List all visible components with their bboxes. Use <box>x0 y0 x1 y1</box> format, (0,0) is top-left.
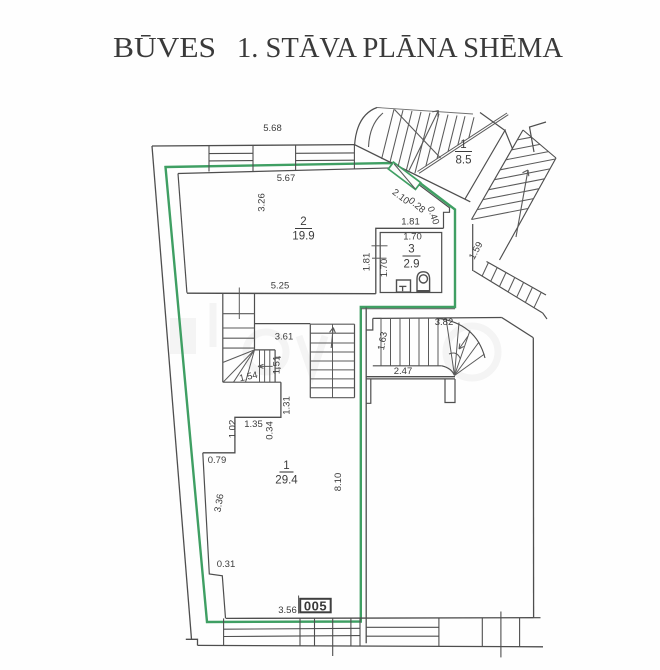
svg-text:1.31: 1.31 <box>282 396 293 415</box>
svg-text:2.9: 2.9 <box>404 259 420 271</box>
svg-text:3.82: 3.82 <box>435 317 454 328</box>
svg-text:8.10: 8.10 <box>333 473 344 492</box>
svg-text:1.70: 1.70 <box>403 232 422 243</box>
svg-text:3.26: 3.26 <box>257 193 268 212</box>
svg-text:1.70: 1.70 <box>379 259 390 278</box>
svg-text:1: 1 <box>283 460 289 472</box>
svg-text:BŪVES: BŪVES <box>113 33 216 64</box>
svg-text:1. STĀVA PLĀNA SHĒMA: 1. STĀVA PLĀNA SHĒMA <box>237 33 564 64</box>
svg-text:2.47: 2.47 <box>394 366 413 377</box>
svg-text:1.51: 1.51 <box>271 356 282 375</box>
svg-text:3.56: 3.56 <box>278 605 297 616</box>
svg-text:19.9: 19.9 <box>292 231 314 243</box>
svg-text:3.61: 3.61 <box>275 332 294 343</box>
svg-text:1: 1 <box>460 139 466 151</box>
svg-text:5.67: 5.67 <box>277 173 296 184</box>
svg-text:2: 2 <box>300 216 306 228</box>
svg-text:1.02: 1.02 <box>227 420 238 439</box>
svg-text:0.79: 0.79 <box>208 455 227 466</box>
svg-text:1.35: 1.35 <box>244 419 263 430</box>
svg-text:0.31: 0.31 <box>217 559 236 570</box>
svg-text:005: 005 <box>304 599 327 614</box>
svg-text:0.34: 0.34 <box>264 421 275 440</box>
svg-text:8.5: 8.5 <box>456 155 472 167</box>
svg-text:5.68: 5.68 <box>263 123 282 134</box>
svg-text:1.81: 1.81 <box>361 253 372 272</box>
svg-text:1.81: 1.81 <box>401 217 420 228</box>
svg-text:29.4: 29.4 <box>275 475 298 487</box>
svg-text:3: 3 <box>408 244 414 256</box>
svg-text:5.25: 5.25 <box>271 281 290 292</box>
